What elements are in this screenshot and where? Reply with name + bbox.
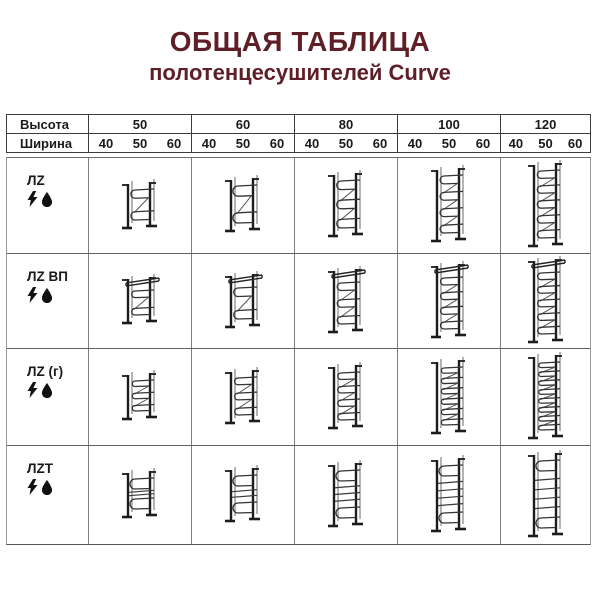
product-image-cell <box>295 446 398 544</box>
model-label-cell: ЛZT <box>7 446 89 544</box>
height-value: 50 <box>89 115 192 133</box>
model-label-cell: ЛZ <box>7 158 89 253</box>
width-value: 60 <box>373 136 387 151</box>
width-group: 405060 <box>295 134 398 152</box>
width-value: 50 <box>236 136 250 151</box>
towel-dryer-drawing <box>425 164 473 247</box>
product-image-cell <box>501 349 590 445</box>
height-value: 120 <box>501 115 590 133</box>
product-image-cell <box>89 158 192 253</box>
lightning-icon <box>27 479 38 500</box>
drop-icon <box>41 480 53 500</box>
width-value: 50 <box>442 136 456 151</box>
width-value: 40 <box>408 136 422 151</box>
towel-dryer-drawing <box>219 270 267 333</box>
product-image-cell <box>192 349 295 445</box>
height-value: 60 <box>192 115 295 133</box>
towel-dryer-drawing <box>219 174 267 237</box>
towel-dryer-drawing <box>425 356 473 439</box>
towel-dryer-drawing <box>425 260 473 343</box>
width-value: 40 <box>99 136 113 151</box>
width-value: 40 <box>305 136 319 151</box>
product-image-cell <box>501 446 590 544</box>
towel-dryer-drawing <box>219 366 267 429</box>
product-image-cell <box>192 254 295 348</box>
towel-dryer-drawing <box>425 454 473 537</box>
table-row: ЛZ ВП <box>7 254 590 349</box>
towel-dryer-drawing <box>322 459 370 532</box>
product-image-cell <box>192 158 295 253</box>
product-image-cell <box>398 158 501 253</box>
lightning-icon <box>27 382 38 403</box>
towel-dryer-drawing <box>116 178 164 234</box>
product-image-cell <box>398 349 501 445</box>
table-row: ЛZT <box>7 446 590 544</box>
towel-dryer-drawing <box>322 169 370 242</box>
feature-icons <box>27 191 53 212</box>
table-row: ЛZ <box>7 158 590 254</box>
towel-dryer-drawing <box>522 449 570 542</box>
towel-dryer-drawing <box>522 351 570 444</box>
width-group: 405060 <box>89 134 192 152</box>
product-image-cell <box>192 446 295 544</box>
height-value: 100 <box>398 115 501 133</box>
height-row: Высота 506080100120 <box>7 115 590 134</box>
width-value: 40 <box>202 136 216 151</box>
width-value: 60 <box>167 136 181 151</box>
drop-icon <box>41 383 53 403</box>
width-value: 50 <box>538 136 552 151</box>
feature-icons <box>27 382 53 403</box>
width-group: 405060 <box>192 134 295 152</box>
product-table: ЛZЛZ ВПЛZ (г)ЛZT <box>6 157 591 545</box>
width-value: 40 <box>509 136 523 151</box>
towel-dryer-drawing <box>522 159 570 252</box>
width-value: 50 <box>133 136 147 151</box>
height-label: Высота <box>7 115 89 133</box>
product-image-cell <box>295 349 398 445</box>
lightning-icon <box>27 287 38 308</box>
product-image-cell <box>398 446 501 544</box>
width-value: 60 <box>476 136 490 151</box>
towel-dryer-drawing <box>522 255 570 348</box>
catalog-page: ОБЩАЯ ТАБЛИЦА полотенцесушителей Curve В… <box>0 0 600 600</box>
lightning-icon <box>27 191 38 212</box>
width-label: Ширина <box>7 134 89 152</box>
product-image-cell <box>295 254 398 348</box>
product-image-cell <box>89 254 192 348</box>
towel-dryer-drawing <box>322 361 370 434</box>
feature-icons <box>27 287 53 308</box>
width-value: 60 <box>270 136 284 151</box>
product-image-cell <box>501 158 590 253</box>
model-name: ЛZT <box>27 461 53 476</box>
product-image-cell <box>89 446 192 544</box>
model-name: ЛZ <box>27 173 45 188</box>
width-group: 405060 <box>398 134 501 152</box>
towel-dryer-drawing <box>116 273 164 329</box>
model-name: ЛZ (г) <box>27 364 63 379</box>
product-image-cell <box>501 254 590 348</box>
towel-dryer-drawing <box>219 464 267 527</box>
title-line1: ОБЩАЯ ТАБЛИЦА <box>0 26 600 58</box>
product-image-cell <box>89 349 192 445</box>
model-name: ЛZ ВП <box>27 269 68 284</box>
towel-dryer-drawing <box>322 265 370 338</box>
product-image-cell <box>398 254 501 348</box>
width-value: 50 <box>339 136 353 151</box>
width-row: Ширина 405060405060405060405060405060 <box>7 134 590 152</box>
feature-icons <box>27 479 53 500</box>
model-label-cell: ЛZ ВП <box>7 254 89 348</box>
size-header-table: Высота 506080100120 Ширина 4050604050604… <box>6 114 591 153</box>
title-line2: полотенцесушителей Curve <box>0 60 600 85</box>
towel-dryer-drawing <box>116 369 164 425</box>
height-value: 80 <box>295 115 398 133</box>
table-row: ЛZ (г) <box>7 349 590 446</box>
drop-icon <box>41 288 53 308</box>
page-title: ОБЩАЯ ТАБЛИЦА полотенцесушителей Curve <box>0 26 600 85</box>
model-label-cell: ЛZ (г) <box>7 349 89 445</box>
product-image-cell <box>295 158 398 253</box>
width-group: 405060 <box>501 134 590 152</box>
towel-dryer-drawing <box>116 467 164 523</box>
drop-icon <box>41 192 53 212</box>
width-value: 60 <box>568 136 582 151</box>
